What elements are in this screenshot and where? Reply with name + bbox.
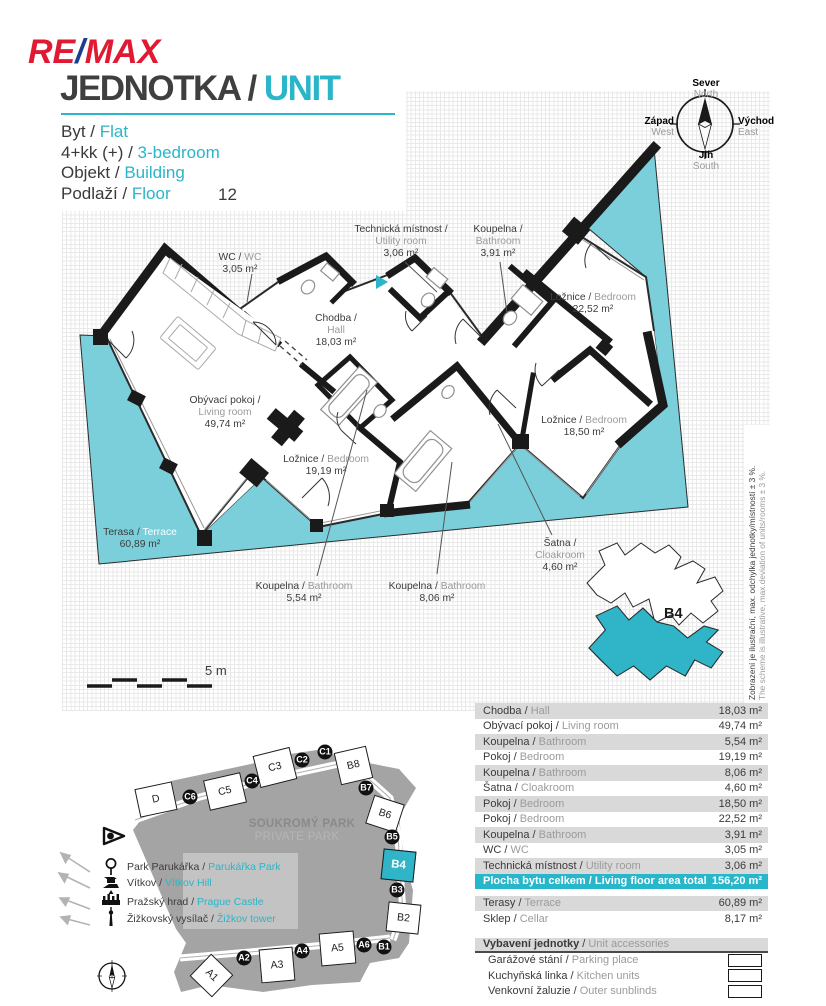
svg-text:B4: B4	[664, 606, 683, 622]
svg-text:5 m: 5 m	[205, 663, 227, 678]
